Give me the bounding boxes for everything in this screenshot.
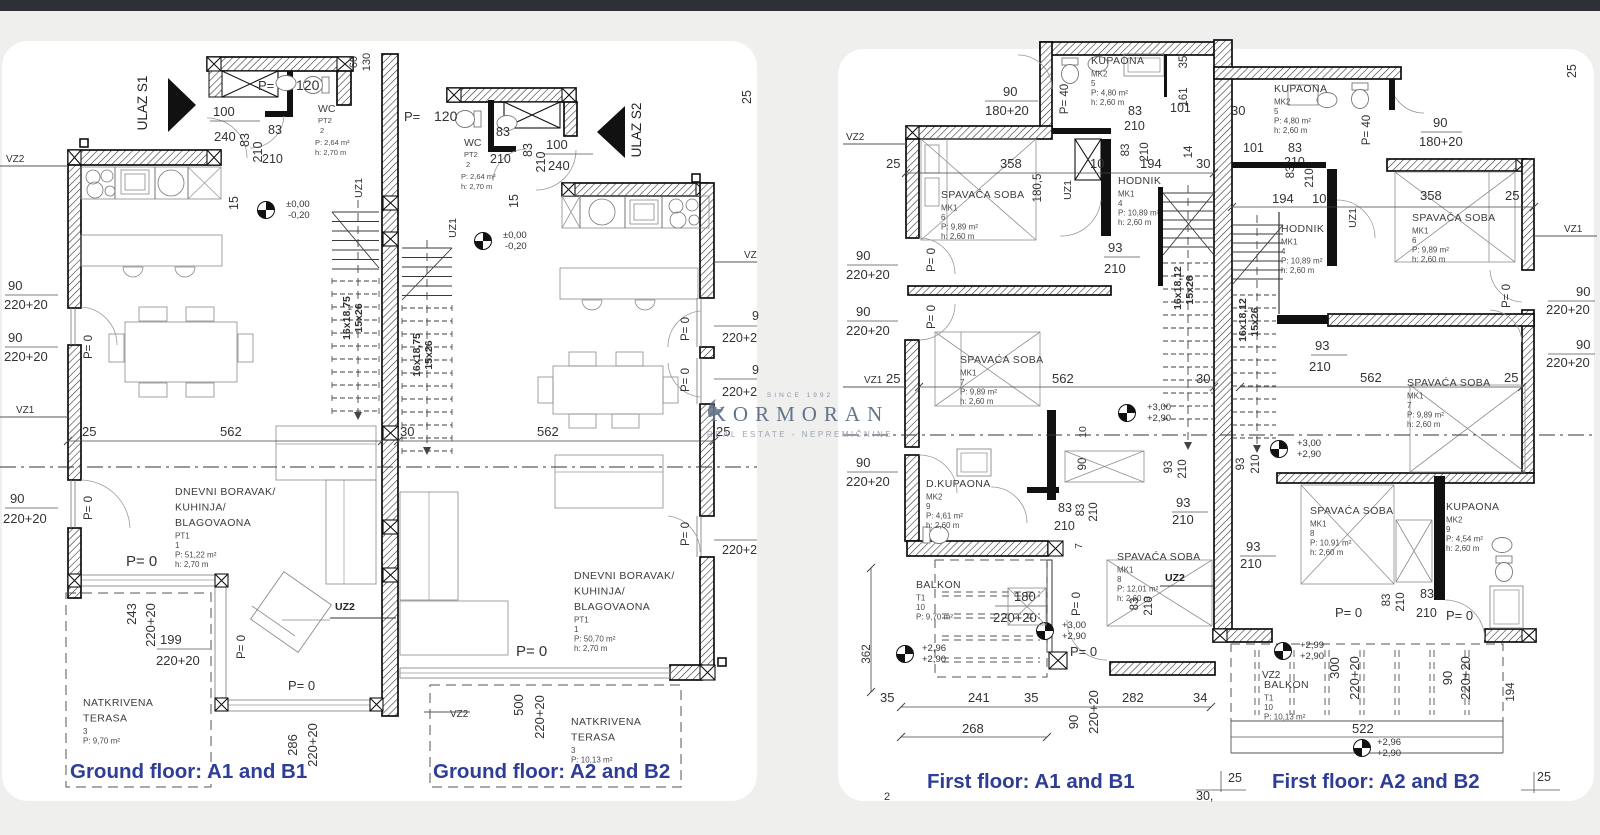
svg-text:220+20: 220+20 (4, 297, 48, 312)
svg-text:h: 2,60 m: h: 2,60 m (960, 397, 994, 406)
svg-text:199: 199 (160, 632, 182, 647)
svg-text:16x18,12: 16x18,12 (1172, 266, 1184, 310)
svg-text:P: 9,89 m²: P: 9,89 m² (1407, 411, 1444, 420)
svg-text:TERASA: TERASA (83, 713, 127, 725)
svg-text:MK2: MK2 (926, 493, 943, 502)
svg-text:h: 2,70 m: h: 2,70 m (175, 560, 209, 569)
svg-text:1: 1 (175, 541, 180, 550)
svg-text:180,5: 180,5 (1032, 174, 1044, 203)
svg-text:210: 210 (1416, 606, 1437, 620)
svg-text:282: 282 (1122, 690, 1144, 705)
svg-text:8: 8 (1117, 575, 1122, 584)
svg-text:P: 9,70 m²: P: 9,70 m² (83, 737, 120, 746)
svg-text:562: 562 (220, 424, 242, 439)
svg-text:P: 9,89 m²: P: 9,89 m² (960, 388, 997, 397)
svg-text:210: 210 (262, 152, 283, 166)
svg-text:MK1: MK1 (1407, 392, 1424, 401)
svg-text:93: 93 (1163, 461, 1175, 474)
svg-text:25: 25 (740, 90, 754, 104)
svg-text:WC: WC (464, 137, 482, 149)
svg-text:210: 210 (1240, 556, 1262, 571)
svg-text:DNEVNI BORAVAK/: DNEVNI BORAVAK/ (175, 486, 276, 498)
svg-text:T1: T1 (916, 594, 926, 603)
svg-text:SPAVAĆA SOBA: SPAVAĆA SOBA (1310, 504, 1394, 517)
svg-text:D.KUPAONA: D.KUPAONA (926, 478, 991, 490)
svg-text:VZ1: VZ1 (864, 375, 883, 386)
svg-text:522: 522 (1352, 721, 1374, 736)
svg-text:P: 9,89 m²: P: 9,89 m² (941, 223, 978, 232)
svg-text:SPAVAĆA SOBA: SPAVAĆA SOBA (960, 353, 1044, 366)
svg-text:60: 60 (348, 56, 360, 68)
svg-text:240: 240 (548, 158, 570, 173)
svg-text:P: 9,89 m²: P: 9,89 m² (1412, 246, 1449, 255)
svg-text:+2,90: +2,90 (1147, 413, 1171, 424)
svg-text:7: 7 (960, 378, 965, 387)
svg-text:MK1: MK1 (1310, 520, 1327, 529)
svg-text:UZ1: UZ1 (353, 178, 365, 198)
svg-text:UZ2: UZ2 (1165, 572, 1185, 584)
svg-text:h: 2,60 m: h: 2,60 m (1274, 126, 1308, 135)
svg-text:h: 2,70 m: h: 2,70 m (461, 182, 492, 191)
svg-text:+2,90: +2,90 (922, 654, 946, 665)
svg-text:93: 93 (1235, 458, 1247, 471)
svg-text:25: 25 (1565, 64, 1579, 78)
svg-text:83: 83 (1288, 141, 1302, 155)
svg-text:MK1: MK1 (1117, 566, 1134, 575)
svg-text:P= 0: P= 0 (1446, 608, 1473, 623)
svg-text:25: 25 (1504, 370, 1518, 385)
svg-text:9: 9 (752, 309, 759, 323)
svg-text:220+2: 220+2 (722, 331, 757, 345)
svg-text:3: 3 (571, 746, 576, 755)
svg-text:1: 1 (574, 625, 579, 634)
svg-text:90: 90 (1576, 337, 1590, 352)
svg-text:P: 10,91 m²: P: 10,91 m² (1310, 539, 1352, 548)
svg-text:15x26: 15x26 (1249, 307, 1261, 336)
svg-text:90: 90 (1003, 84, 1017, 99)
svg-text:+2,90: +2,90 (1300, 651, 1324, 662)
svg-text:ULAZ S1: ULAZ S1 (135, 76, 150, 131)
svg-text:210: 210 (534, 152, 548, 173)
svg-text:194: 194 (1140, 156, 1162, 171)
svg-text:30,: 30, (1196, 789, 1213, 803)
svg-text:UZ2: UZ2 (335, 601, 355, 613)
svg-text:30: 30 (1231, 103, 1245, 118)
svg-text:220+2: 220+2 (722, 543, 757, 557)
svg-text:562: 562 (537, 424, 559, 439)
svg-text:±0,00: ±0,00 (503, 230, 527, 241)
svg-text:220+20: 220+20 (846, 323, 890, 338)
svg-text:4: 4 (1281, 247, 1286, 256)
svg-text:+3,00: +3,00 (1147, 402, 1171, 413)
svg-text:210: 210 (1143, 596, 1155, 615)
svg-text:3: 3 (83, 727, 88, 736)
svg-text:93: 93 (1246, 539, 1260, 554)
svg-text:KUHINJA/: KUHINJA/ (574, 586, 625, 598)
svg-text:PT1: PT1 (574, 616, 589, 625)
svg-text:P= 0: P= 0 (83, 496, 95, 520)
svg-text:-0,20: -0,20 (505, 241, 527, 252)
svg-text:+2,90: +2,90 (1377, 748, 1401, 759)
svg-text:10: 10 (1264, 703, 1273, 712)
svg-text:220+20: 220+20 (846, 267, 890, 282)
svg-text:180+20: 180+20 (1419, 134, 1463, 149)
svg-text:HODNIK: HODNIK (1118, 175, 1161, 187)
svg-text:83: 83 (1129, 598, 1141, 611)
svg-text:5: 5 (1091, 79, 1096, 88)
svg-text:210: 210 (1088, 502, 1100, 521)
svg-text:P= 0: P= 0 (680, 317, 692, 341)
svg-text:15: 15 (507, 194, 521, 208)
svg-text:+3,00: +3,00 (1297, 438, 1321, 449)
svg-text:P=: P= (258, 78, 274, 93)
svg-text:83: 83 (268, 123, 282, 137)
svg-text:6: 6 (1412, 236, 1417, 245)
svg-text:P= 0: P= 0 (1071, 592, 1083, 616)
svg-text:101: 101 (1243, 141, 1264, 155)
svg-text:6: 6 (941, 213, 946, 222)
svg-text:2: 2 (320, 126, 324, 135)
svg-text:83: 83 (1381, 594, 1393, 607)
svg-text:P: 10,89 m²: P: 10,89 m² (1281, 257, 1323, 266)
svg-text:h: 2,60 m: h: 2,60 m (1118, 218, 1152, 227)
svg-text:P: 9,70 m²: P: 9,70 m² (916, 613, 953, 622)
svg-text:P: 10,13 m²: P: 10,13 m² (1264, 713, 1306, 722)
svg-text:TERASA: TERASA (571, 732, 615, 744)
svg-text:7: 7 (1407, 401, 1412, 410)
svg-text:9: 9 (1446, 525, 1451, 534)
svg-text:P= 0: P= 0 (236, 635, 248, 659)
svg-text:90: 90 (856, 455, 870, 470)
svg-text:30: 30 (1196, 371, 1210, 386)
svg-text:MK1: MK1 (1118, 190, 1135, 199)
svg-text:90: 90 (8, 278, 22, 293)
svg-text:7: 7 (1073, 543, 1085, 549)
svg-text:90: 90 (10, 491, 24, 506)
svg-text:P: 4,54 m²: P: 4,54 m² (1446, 535, 1483, 544)
svg-text:h: 2,70 m: h: 2,70 m (574, 644, 608, 653)
svg-text:220+20: 220+20 (1086, 690, 1101, 734)
svg-text:P= 0: P= 0 (1070, 644, 1097, 659)
svg-text:220+20: 220+20 (3, 511, 47, 526)
svg-text:MK1: MK1 (960, 369, 977, 378)
svg-text:15: 15 (227, 196, 241, 210)
svg-text:T1: T1 (1264, 694, 1274, 703)
svg-text:34: 34 (1193, 690, 1207, 705)
svg-text:9: 9 (926, 502, 931, 511)
svg-text:210: 210 (1304, 168, 1316, 187)
svg-text:h: 2,60 m: h: 2,60 m (941, 232, 975, 241)
svg-text:90: 90 (1066, 715, 1081, 729)
svg-text:P: 50,70 m²: P: 50,70 m² (574, 635, 616, 644)
svg-text:+2,90: +2,90 (1062, 631, 1086, 642)
svg-text:83: 83 (496, 125, 510, 139)
svg-text:25: 25 (1537, 770, 1551, 784)
svg-text:UZ1: UZ1 (447, 218, 459, 238)
svg-text:210: 210 (1054, 519, 1075, 533)
svg-text:15x26: 15x26 (423, 340, 435, 369)
svg-text:2: 2 (466, 160, 470, 169)
svg-text:120: 120 (434, 108, 458, 124)
svg-text:NATKRIVENA: NATKRIVENA (571, 716, 641, 728)
svg-text:KUPAONA: KUPAONA (1446, 501, 1499, 513)
svg-text:P=: P= (404, 109, 420, 124)
svg-text:+2,96: +2,96 (1377, 737, 1401, 748)
svg-text:180+20: 180+20 (985, 103, 1029, 118)
svg-text:25: 25 (1228, 771, 1242, 785)
svg-text:NATKRIVENA: NATKRIVENA (83, 697, 153, 709)
svg-text:BALKON: BALKON (916, 579, 961, 591)
svg-text:P= 0: P= 0 (926, 305, 938, 329)
svg-text:25: 25 (886, 371, 900, 386)
svg-text:P= 40: P= 40 (1361, 115, 1373, 145)
svg-text:VZ2: VZ2 (846, 132, 865, 143)
svg-text:PT2: PT2 (318, 116, 332, 125)
svg-text:10: 10 (916, 603, 925, 612)
svg-text:194: 194 (1272, 191, 1294, 206)
svg-text:90: 90 (856, 304, 870, 319)
svg-text:16x18,75: 16x18,75 (411, 333, 423, 377)
svg-text:P= 0: P= 0 (83, 335, 95, 359)
svg-text:120: 120 (296, 77, 320, 93)
svg-text:h: 2,60 m: h: 2,60 m (1407, 420, 1441, 429)
svg-text:SPAVAĆA SOBA: SPAVAĆA SOBA (941, 188, 1025, 201)
svg-text:VZ: VZ (744, 250, 757, 261)
svg-text:25: 25 (1505, 188, 1519, 203)
svg-text:210: 210 (251, 142, 265, 163)
svg-text:500: 500 (511, 694, 526, 716)
svg-text:P= 0: P= 0 (516, 643, 547, 660)
svg-text:VZ1: VZ1 (16, 405, 35, 416)
svg-text:300: 300 (1327, 657, 1342, 679)
svg-text:P= 0: P= 0 (1335, 605, 1362, 620)
svg-text:P= 40: P= 40 (1059, 84, 1071, 114)
svg-text:±0,00: ±0,00 (286, 199, 310, 210)
svg-text:210: 210 (1177, 459, 1189, 478)
svg-text:220+20: 220+20 (1458, 656, 1473, 700)
svg-text:16x18,12: 16x18,12 (1237, 298, 1249, 342)
svg-text:93: 93 (1315, 338, 1329, 353)
svg-text:SPAVAĆA SOBA: SPAVAĆA SOBA (1412, 211, 1496, 224)
svg-text:90: 90 (1576, 284, 1590, 299)
svg-text:16x18,75: 16x18,75 (341, 296, 353, 340)
svg-text:P= 0: P= 0 (680, 522, 692, 546)
svg-text:15x26: 15x26 (353, 303, 365, 332)
svg-text:220+20: 220+20 (1546, 302, 1590, 317)
svg-text:BLAGOVAONA: BLAGOVAONA (574, 601, 650, 613)
svg-text:220+20: 220+20 (1546, 355, 1590, 370)
svg-text:210: 210 (1124, 119, 1145, 133)
svg-text:MK1: MK1 (1412, 227, 1429, 236)
svg-text:UZ1: UZ1 (1062, 180, 1074, 200)
svg-text:P: 4,80 m²: P: 4,80 m² (1091, 89, 1128, 98)
svg-text:562: 562 (1052, 371, 1074, 386)
svg-text:VZ1: VZ1 (1564, 224, 1583, 235)
svg-text:PT2: PT2 (464, 150, 478, 159)
svg-text:+2,96: +2,96 (922, 643, 946, 654)
svg-text:83: 83 (1075, 504, 1087, 517)
svg-text:5: 5 (1274, 107, 1279, 116)
svg-text:-0,20: -0,20 (288, 210, 310, 221)
svg-text:210: 210 (490, 152, 511, 166)
svg-text:KUPAONA: KUPAONA (1274, 83, 1327, 95)
svg-text:2: 2 (884, 791, 890, 803)
svg-text:243: 243 (124, 603, 139, 625)
svg-text:h: 2,60 m: h: 2,60 m (926, 521, 960, 530)
svg-text:MK2: MK2 (1274, 98, 1291, 107)
svg-text:286: 286 (285, 734, 300, 756)
svg-text:268: 268 (962, 721, 984, 736)
svg-text:101: 101 (1170, 101, 1191, 115)
svg-text:KUHINJA/: KUHINJA/ (175, 502, 226, 514)
svg-text:P: 2,64 m²: P: 2,64 m² (461, 172, 496, 181)
svg-text:240: 240 (214, 129, 236, 144)
svg-text:90: 90 (1433, 115, 1447, 130)
svg-text:VZ2: VZ2 (450, 709, 469, 720)
svg-text:h: 2,60 m: h: 2,60 m (1281, 266, 1315, 275)
svg-text:83: 83 (1120, 144, 1132, 157)
svg-text:VZ2: VZ2 (1262, 670, 1281, 681)
svg-text:241: 241 (968, 690, 990, 705)
svg-text:15x26: 15x26 (1184, 275, 1196, 304)
svg-text:MK2: MK2 (1446, 516, 1463, 525)
svg-text:194: 194 (1505, 682, 1517, 702)
svg-text:25: 25 (82, 424, 96, 439)
svg-text:100: 100 (546, 137, 568, 152)
svg-text:MK2: MK2 (1091, 70, 1108, 79)
svg-text:P= 0: P= 0 (288, 678, 315, 693)
svg-text:30: 30 (400, 424, 414, 439)
svg-text:h: 2,60 m: h: 2,60 m (1091, 98, 1125, 107)
svg-text:P: 51,22 m²: P: 51,22 m² (175, 551, 217, 560)
svg-text:h: 2,60 m: h: 2,60 m (1446, 544, 1480, 553)
svg-text:14: 14 (1183, 145, 1195, 158)
svg-text:83: 83 (521, 143, 535, 157)
svg-text:90: 90 (8, 330, 22, 345)
svg-text:562: 562 (1360, 370, 1382, 385)
svg-text:HODNIK: HODNIK (1281, 223, 1324, 235)
svg-text:10: 10 (1077, 426, 1089, 438)
svg-text:30: 30 (1196, 156, 1210, 171)
svg-text:PT1: PT1 (175, 532, 190, 541)
svg-text:220+20: 220+20 (846, 474, 890, 489)
svg-text:220+20: 220+20 (4, 349, 48, 364)
svg-text:MK1: MK1 (941, 204, 958, 213)
svg-text:35: 35 (1178, 56, 1190, 69)
svg-text:90: 90 (856, 248, 870, 263)
svg-text:P: 10,89 m²: P: 10,89 m² (1118, 209, 1160, 218)
svg-text:210: 210 (1309, 359, 1331, 374)
svg-text:h: 2,60 m: h: 2,60 m (1310, 548, 1344, 557)
svg-text:25: 25 (886, 156, 900, 171)
svg-text:h: 2,70 m: h: 2,70 m (315, 148, 346, 157)
svg-text:130: 130 (361, 53, 373, 71)
svg-text:+2,99: +2,99 (1300, 640, 1324, 651)
svg-text:4: 4 (1118, 199, 1123, 208)
svg-text:83: 83 (1420, 587, 1434, 601)
svg-text:VZ2: VZ2 (6, 154, 25, 165)
svg-text:ULAZ S2: ULAZ S2 (629, 103, 644, 158)
svg-text:220+20: 220+20 (1347, 656, 1362, 700)
svg-text:P: 12,01 m²: P: 12,01 m² (1117, 585, 1159, 594)
svg-text:35: 35 (880, 690, 894, 705)
svg-text:358: 358 (1000, 156, 1022, 171)
svg-text:358: 358 (1420, 188, 1442, 203)
svg-text:SPAVAĆA SOBA: SPAVAĆA SOBA (1407, 376, 1491, 389)
svg-text:P= 0: P= 0 (1501, 284, 1513, 308)
svg-text:P: 4,61 m²: P: 4,61 m² (926, 512, 963, 521)
svg-text:BLAGOVAONA: BLAGOVAONA (175, 517, 251, 529)
svg-text:P: 2,64 m²: P: 2,64 m² (315, 138, 350, 147)
svg-text:9: 9 (752, 363, 759, 377)
svg-text:210: 210 (1250, 454, 1262, 473)
svg-text:83: 83 (1058, 501, 1072, 515)
svg-text:P= 0: P= 0 (680, 368, 692, 392)
svg-text:220+20: 220+20 (143, 603, 158, 647)
svg-text:+2,90: +2,90 (1297, 449, 1321, 460)
svg-text:210: 210 (1172, 512, 1194, 527)
svg-text:93: 93 (1176, 495, 1190, 510)
svg-text:P: 4,80 m²: P: 4,80 m² (1274, 117, 1311, 126)
svg-text:DNEVNI BORAVAK/: DNEVNI BORAVAK/ (574, 570, 675, 582)
svg-text:h: 2,60 m: h: 2,60 m (1412, 255, 1446, 264)
svg-text:10: 10 (1312, 191, 1326, 206)
svg-text:83: 83 (1128, 104, 1142, 118)
svg-text:93: 93 (1108, 240, 1122, 255)
svg-text:P= 0: P= 0 (126, 553, 157, 570)
svg-text:8: 8 (1310, 529, 1315, 538)
svg-text:P= 0: P= 0 (926, 248, 938, 272)
svg-text:+3,00: +3,00 (1062, 620, 1086, 631)
svg-text:KUPAONA: KUPAONA (1091, 55, 1144, 67)
svg-text:10: 10 (1090, 156, 1104, 171)
svg-text:220+20: 220+20 (156, 653, 200, 668)
svg-text:100: 100 (213, 104, 235, 119)
svg-text:210: 210 (1395, 592, 1407, 611)
svg-text:WC: WC (318, 103, 336, 115)
svg-text:UZ1: UZ1 (1347, 208, 1359, 228)
svg-text:35: 35 (1024, 690, 1038, 705)
svg-text:MK1: MK1 (1281, 238, 1298, 247)
svg-text:220+20: 220+20 (532, 695, 547, 739)
svg-text:210: 210 (1104, 261, 1126, 276)
svg-text:220+20: 220+20 (993, 610, 1037, 625)
svg-text:83: 83 (238, 133, 252, 147)
svg-text:SPAVAĆA SOBA: SPAVAĆA SOBA (1117, 550, 1201, 563)
svg-text:90: 90 (1440, 671, 1455, 685)
